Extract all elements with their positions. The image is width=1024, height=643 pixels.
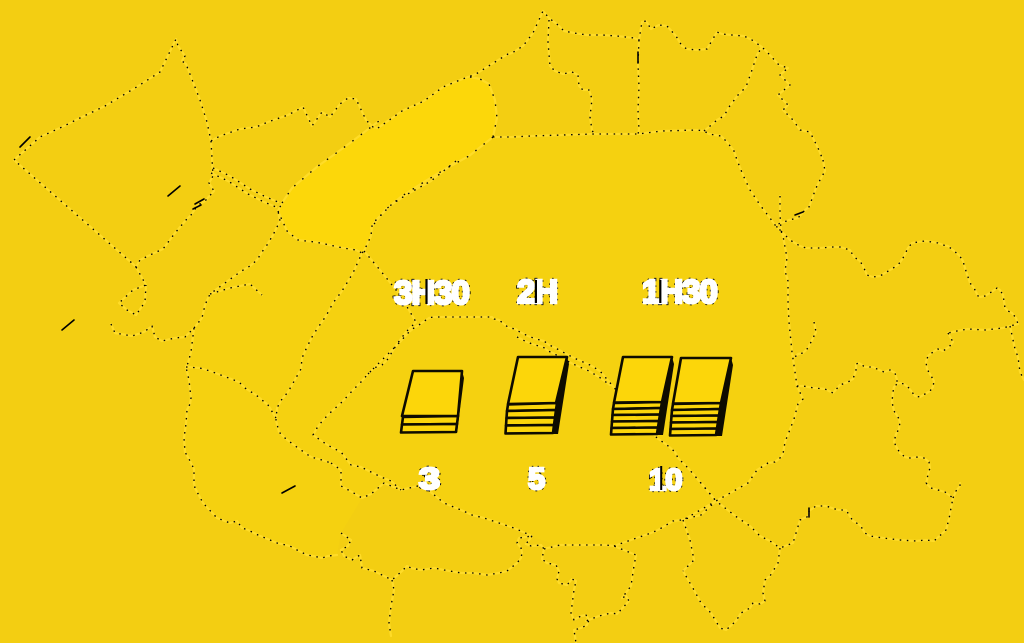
svg-text:10: 10 [649, 462, 681, 497]
svg-text:3: 3 [419, 461, 440, 496]
svg-text:5: 5 [528, 461, 545, 496]
svg-text:2H: 2H [517, 273, 557, 310]
svg-text:1H30: 1H30 [642, 273, 717, 310]
svg-text:3H30: 3H30 [394, 274, 469, 311]
